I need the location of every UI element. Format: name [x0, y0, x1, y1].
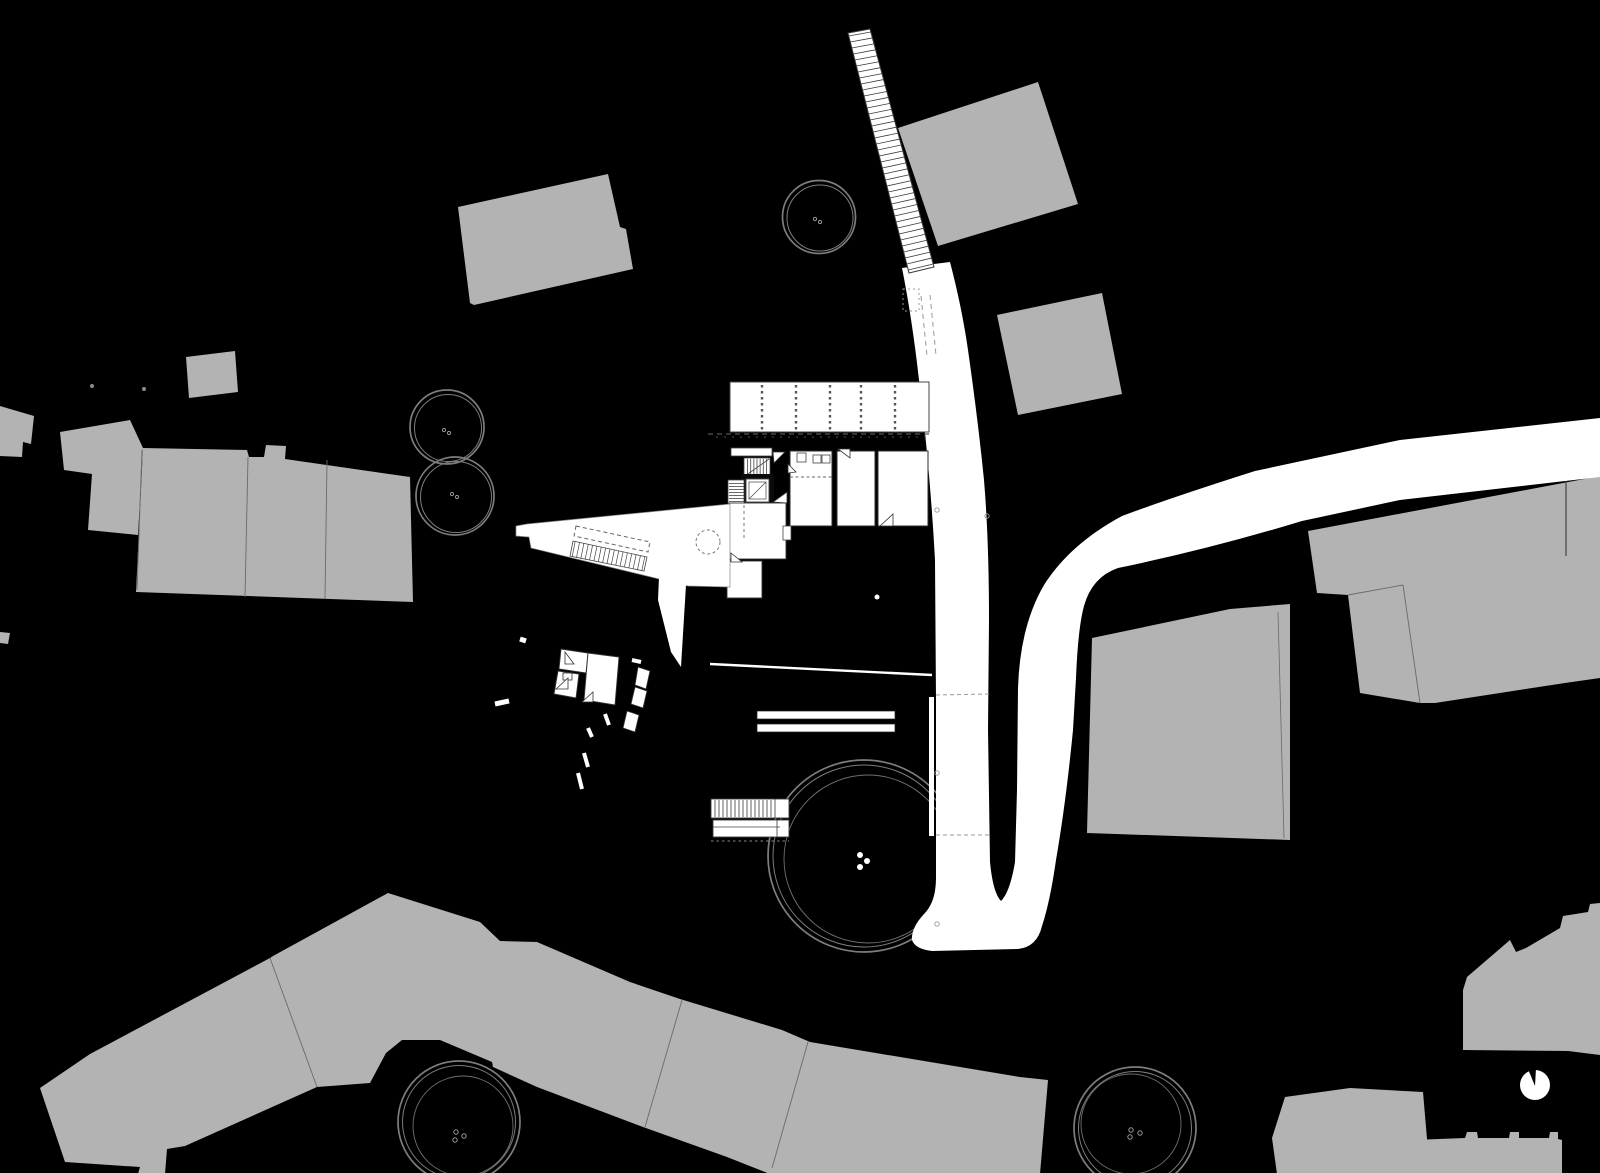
bench-2 — [757, 724, 895, 732]
trail-tick-4 — [588, 728, 592, 737]
tree-left1-dot-1 — [442, 428, 445, 431]
tree-bottom-left-ring-1 — [398, 1061, 520, 1173]
tree-left2-ring-inner — [421, 462, 492, 533]
building-top-right-b — [997, 293, 1122, 415]
room-south — [727, 561, 762, 598]
plaza-wedge — [516, 504, 730, 587]
tree-bottom-right-dot-3 — [1128, 1135, 1132, 1139]
terrace-dot — [875, 595, 880, 600]
speck-1 — [90, 384, 94, 388]
trail-tick-1 — [495, 701, 509, 704]
building-bottom-right-c4 — [1410, 1132, 1562, 1173]
trail-tick-2 — [520, 639, 526, 641]
tree-bottom-right-ring-1 — [1074, 1067, 1196, 1173]
building-right-r2 — [1087, 604, 1290, 840]
tree-bottom-left-dot-3 — [453, 1138, 457, 1142]
annex-strip-cell-2 — [631, 687, 647, 708]
bench-1 — [757, 711, 895, 719]
room-3 — [878, 451, 928, 526]
tree-bottom-right-dot-2 — [1138, 1131, 1142, 1135]
room-2 — [837, 451, 875, 526]
building-left-sliver — [0, 632, 10, 644]
building-bottom-band — [40, 893, 1048, 1173]
tree-top-ring-outer — [783, 181, 856, 254]
site-plan-canvas — [0, 0, 1600, 1173]
tree-left2-dot-1 — [450, 492, 453, 495]
tree-left1-ring-inner — [415, 395, 482, 462]
building-left-row — [136, 445, 413, 602]
tree-bottom-right-ring-3 — [1081, 1074, 1181, 1173]
south-door-tab — [783, 526, 791, 540]
canopy-pergola — [730, 382, 929, 432]
building-top-left — [458, 174, 633, 305]
tree-bottom-left-dot-1 — [454, 1130, 458, 1134]
tree-bottom-right-ring-2 — [1079, 1072, 1192, 1173]
annex-strip-dash — [632, 660, 641, 662]
core-shelf — [731, 448, 772, 456]
tree-center-dot-1 — [857, 852, 863, 858]
tree-bottom-right-dot-1 — [1129, 1128, 1133, 1132]
site-plan — [0, 0, 1600, 1173]
building-bottom-right-c3 — [1272, 1088, 1430, 1173]
tree-center-dot-2 — [864, 858, 870, 864]
door-swing-1 — [773, 452, 785, 463]
fixture-1 — [797, 453, 806, 462]
tree-left1-dot-2 — [447, 431, 450, 434]
speck-2 — [142, 387, 146, 391]
building-top-right-a — [898, 82, 1078, 246]
tree-bottom-left-ring-2 — [403, 1066, 516, 1173]
door-swing-2 — [773, 492, 787, 503]
corridor-hall — [729, 503, 786, 559]
tree-center-dot-3 — [857, 864, 863, 870]
sw-stair-lower — [713, 820, 789, 837]
building-left-l-shape — [60, 420, 143, 535]
plaza-tail-ramp — [658, 577, 686, 667]
tree-left2-ring-outer — [416, 457, 494, 535]
annex-strip-cell-1 — [635, 667, 650, 689]
tree-top-dot-1 — [813, 217, 816, 220]
trail-tick-6 — [578, 773, 582, 789]
building-small-rect — [186, 351, 238, 398]
trail-tick-3 — [605, 714, 609, 725]
annex-strip-cell-3 — [623, 711, 639, 732]
tree-left1-ring-outer — [410, 390, 484, 464]
tree-bottom-left-dot-2 — [462, 1134, 466, 1138]
annex-room-a — [559, 649, 588, 673]
fixture-2 — [813, 455, 821, 463]
tree-top-dot-2 — [818, 220, 821, 223]
stair-core-side-treads — [729, 484, 744, 502]
trail-tick-5 — [584, 753, 588, 767]
fixture-3 — [822, 455, 830, 463]
tree-top-ring-inner — [787, 185, 853, 251]
terrace-edge-line — [710, 664, 932, 675]
tree-bottom-left-ring-3 — [413, 1076, 513, 1173]
retaining-wall-bar — [929, 697, 934, 836]
tree-left2-dot-2 — [455, 495, 458, 498]
building-bottom-right-c2 — [1463, 903, 1600, 1055]
building-left-corner — [0, 406, 34, 457]
